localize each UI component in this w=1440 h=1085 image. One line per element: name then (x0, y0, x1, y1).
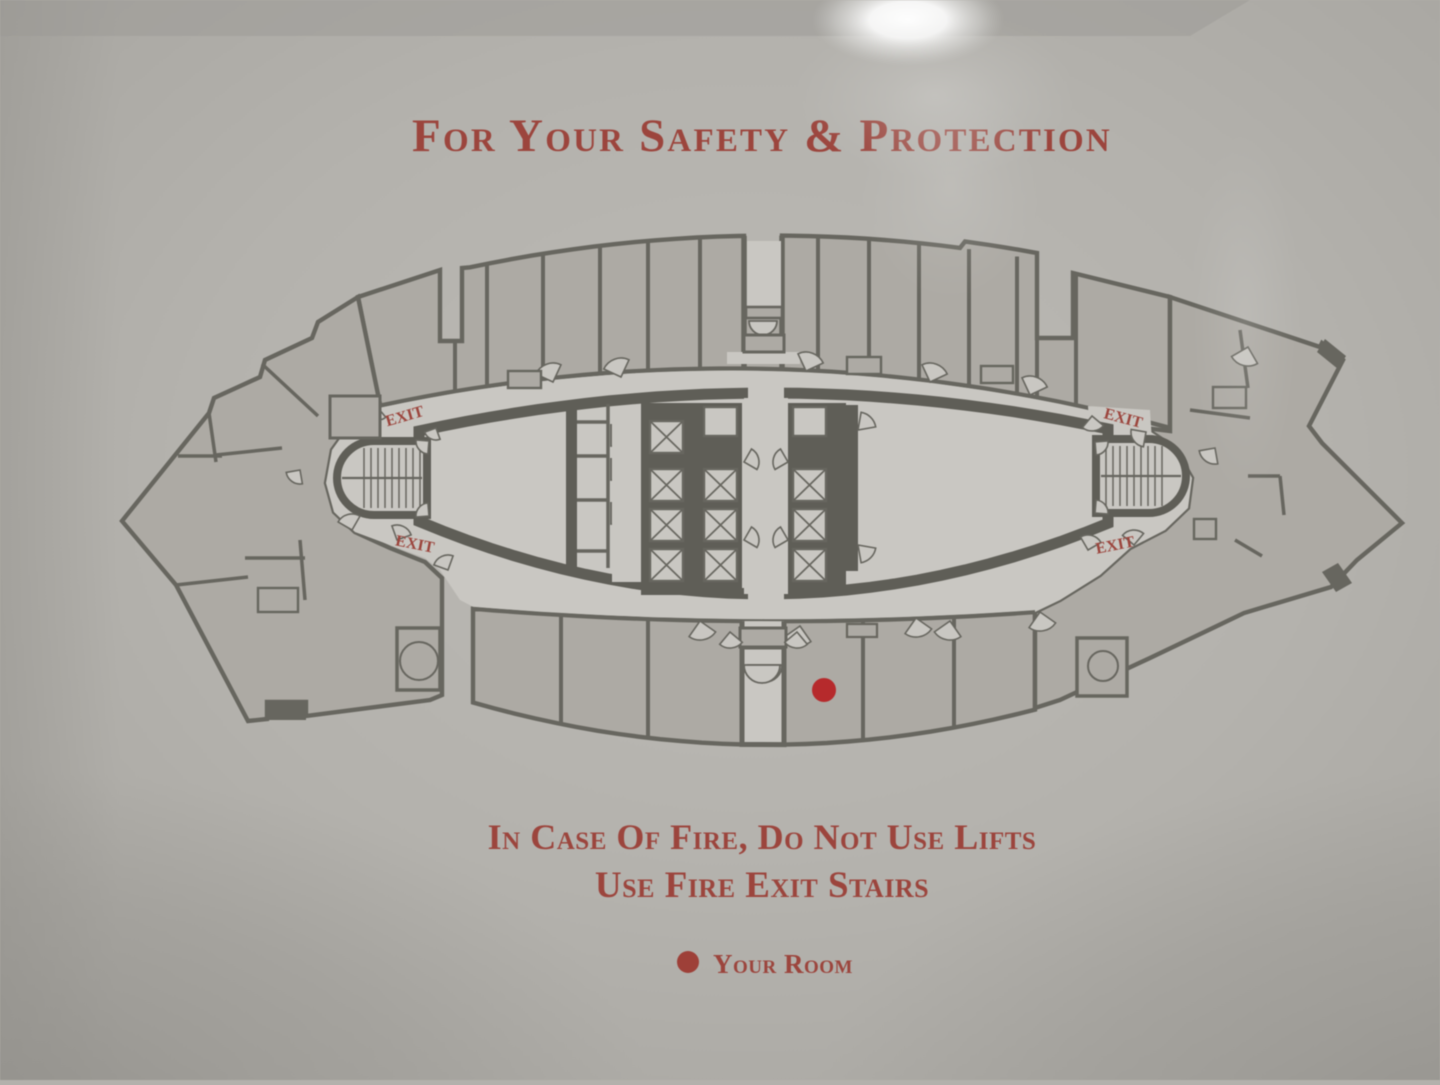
svg-text:Your Room: Your Room (713, 949, 853, 979)
svg-text:Use Fire Exit Stairs: Use Fire Exit Stairs (595, 865, 929, 906)
svg-text:In Case Of Fire, Do Not Use Li: In Case Of Fire, Do Not Use Lifts (488, 817, 1037, 857)
